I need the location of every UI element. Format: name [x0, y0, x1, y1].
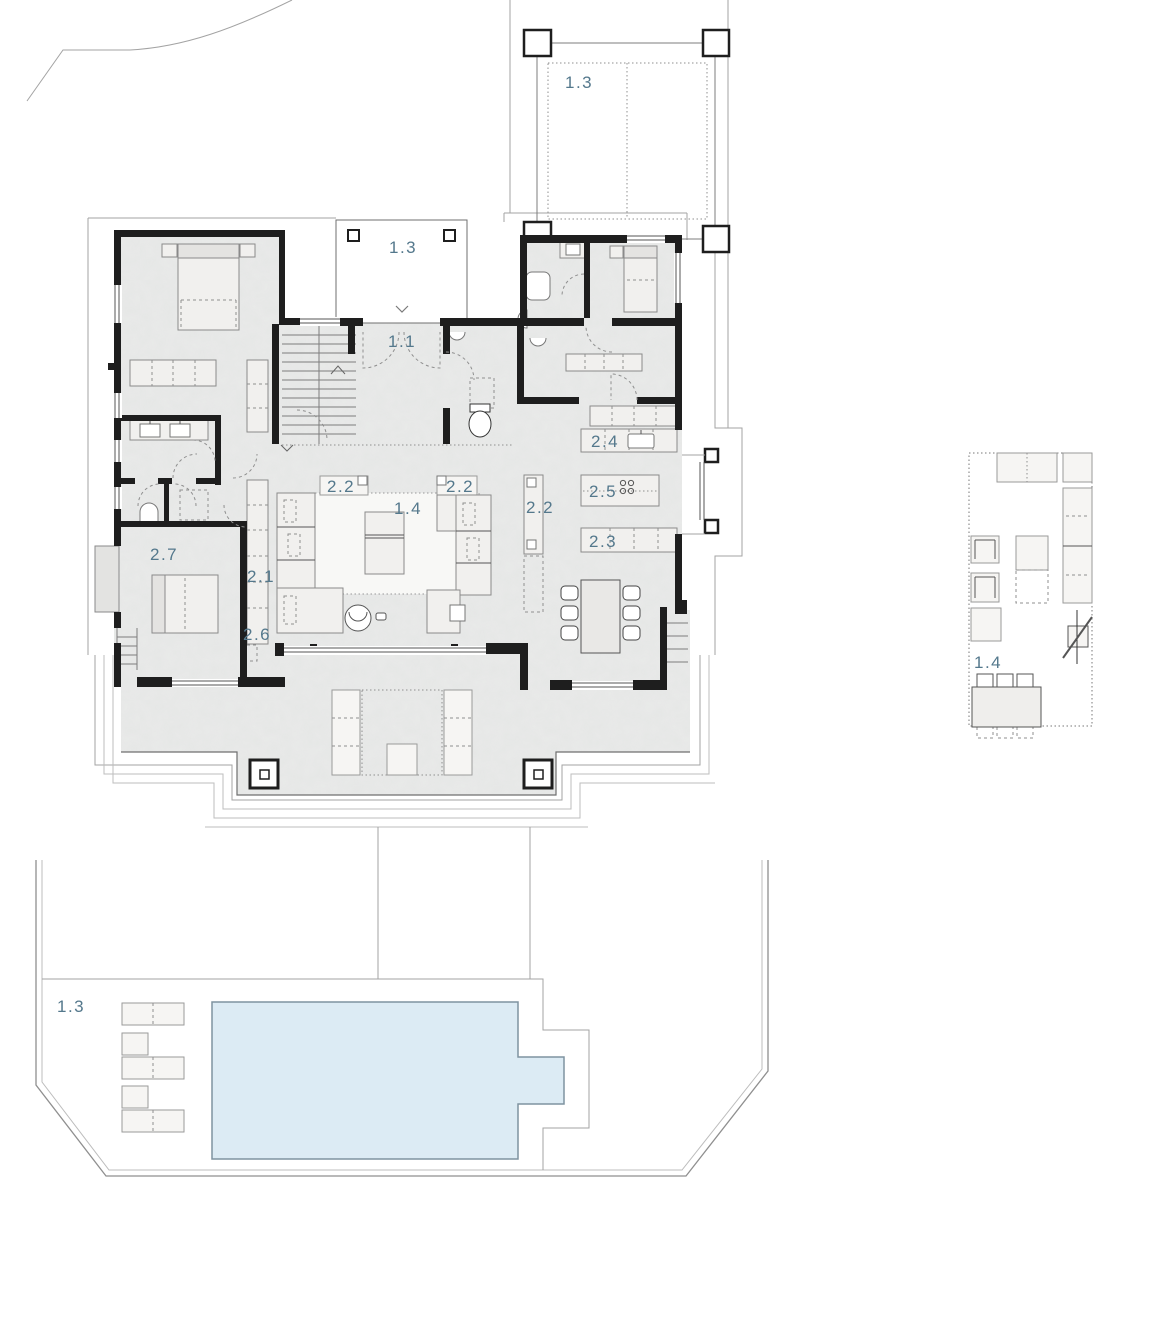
unit-detail: [527, 540, 536, 549]
porch-beams: [682, 455, 705, 534]
entry-porch: 1.3: [336, 220, 467, 323]
porch-column: [348, 230, 359, 241]
chair: [561, 586, 578, 600]
porch-column: [705, 520, 718, 533]
porch-column: [444, 230, 455, 241]
window: [113, 285, 122, 323]
dining-table: [972, 687, 1041, 727]
nightstand: [162, 244, 177, 257]
nightstand: [610, 246, 623, 258]
chair: [561, 606, 578, 620]
shower-tray: [526, 272, 550, 300]
window-bay: [95, 546, 119, 612]
room-label-carport: 1.3: [565, 73, 593, 92]
detail-square-table: [1063, 453, 1092, 482]
side-table: [122, 1086, 148, 1108]
furniture-detail-panel: 1.4: [969, 453, 1092, 738]
room-label-kitchen-tall-unit: 2.2: [526, 498, 554, 517]
chair: [997, 674, 1013, 688]
terrace-east-strip: [667, 610, 690, 690]
chair: [977, 674, 993, 688]
side-table-detail: [450, 605, 465, 621]
detail-dining-set: [972, 674, 1041, 738]
detail-ottoman-dashed: [1016, 570, 1048, 603]
room-label-entry-hall: 1.1: [388, 332, 416, 351]
kitchen-sink-icon: [628, 434, 654, 448]
porch-glazing: [700, 462, 704, 520]
swimming-pool: [212, 1002, 564, 1159]
toilet-icon: [140, 503, 158, 524]
sofa-arm: [358, 476, 367, 485]
room-label-corridor-wardrobe: 2.1: [247, 567, 275, 586]
chair: [561, 626, 578, 640]
window: [113, 487, 122, 509]
bed-pillow: [624, 246, 657, 258]
terrace-column-core: [534, 770, 543, 779]
room-label-bedroom-left: 2.7: [150, 545, 178, 564]
corridor-wardrobe: [247, 480, 268, 644]
sofa-right-chaise: [456, 495, 491, 595]
sun-loungers: [122, 1003, 184, 1132]
pool-site-plan: 1.3: [36, 860, 768, 1176]
dining-table: [581, 580, 620, 653]
guest-toilet-icon: [469, 404, 491, 437]
floor-plan-sheet: 1.3 1.3: [0, 0, 1172, 1338]
window: [113, 393, 122, 418]
floor-lamp-icon: [1063, 610, 1092, 664]
window: [674, 253, 683, 303]
room-label-living-room: 1.4: [394, 499, 422, 518]
room-label-kitchen-counter-low: 2.3: [589, 532, 617, 551]
room-label-sofa-right: 2.2: [446, 477, 474, 496]
closet-strip: [247, 360, 268, 432]
window: [300, 317, 340, 326]
detail-ottoman: [1016, 536, 1048, 570]
pool-connector-lines: [378, 827, 530, 979]
outdoor-sofa: [444, 690, 472, 775]
room-label-kitchen-island: 2.5: [589, 482, 617, 501]
chair: [623, 606, 640, 620]
sink: [170, 424, 190, 437]
outdoor-sofa: [332, 690, 360, 775]
unit-detail: [527, 478, 536, 487]
terrace-left: [121, 684, 237, 752]
room-label-sofa-left: 2.2: [327, 477, 355, 496]
chair: [623, 586, 640, 600]
sliding-glass-wall: [172, 679, 238, 687]
room-label-furniture-detail: 1.4: [974, 653, 1002, 672]
carport-column: [703, 226, 729, 252]
sofa-corner: [277, 588, 343, 633]
chair: [623, 626, 640, 640]
terrace-right: [520, 690, 690, 752]
coffee-table: [365, 512, 404, 574]
carport-column: [524, 30, 551, 56]
room-label-kitchen-counter: 2.4: [591, 432, 619, 451]
sink: [566, 244, 580, 255]
nightstand: [240, 244, 255, 257]
porch-column: [705, 449, 718, 462]
terrace-column-core: [260, 770, 269, 779]
carport-column: [703, 30, 729, 56]
sink: [140, 424, 160, 437]
bed-pillow: [178, 244, 239, 258]
bed-pillow: [152, 575, 165, 633]
sofa-arm: [437, 476, 446, 485]
room-label-pool-area: 1.3: [57, 997, 85, 1016]
outdoor-table: [387, 744, 417, 775]
sliding-glass-wall: [284, 646, 486, 655]
window: [113, 440, 122, 462]
sliding-glass-wall: [572, 681, 633, 689]
floor-plan-drawing: 1.3 1.3: [0, 0, 1172, 1338]
detail-square: [971, 608, 1001, 641]
plot-boundary-curve: [27, 0, 292, 101]
side-table: [122, 1033, 148, 1055]
room-label-entry-porch: 1.3: [389, 238, 417, 257]
room-label-corridor-cabinet: 2.6: [243, 625, 271, 644]
chair: [1017, 674, 1033, 688]
carport: 1.3: [524, 30, 729, 252]
carport-frame: [537, 43, 715, 239]
window: [627, 234, 665, 243]
